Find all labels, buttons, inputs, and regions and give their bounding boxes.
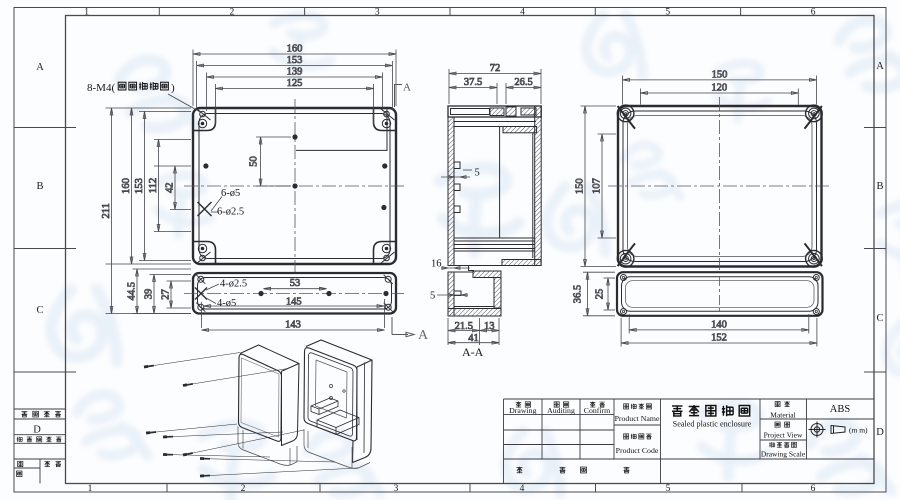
- svg-text:37.5: 37.5: [464, 77, 482, 88]
- svg-text:Confirm: Confirm: [584, 406, 610, 415]
- svg-text:42: 42: [165, 183, 176, 194]
- svg-text:1: 1: [84, 8, 89, 18]
- svg-text:Drawing: Drawing: [509, 406, 536, 415]
- svg-text:): ): [171, 82, 175, 94]
- svg-text:160: 160: [121, 178, 132, 194]
- svg-text:25: 25: [595, 289, 606, 300]
- svg-text:13: 13: [484, 321, 495, 332]
- svg-text:C: C: [876, 313, 883, 324]
- svg-text:4: 4: [520, 8, 525, 18]
- svg-text:2: 2: [241, 484, 246, 494]
- svg-text:72: 72: [490, 63, 501, 74]
- svg-text:153: 153: [287, 55, 303, 66]
- svg-text:5: 5: [430, 291, 435, 302]
- svg-text:150: 150: [575, 178, 586, 194]
- svg-text:B: B: [36, 181, 43, 192]
- svg-text:D: D: [33, 425, 41, 436]
- svg-text:(m m): (m m): [849, 426, 868, 435]
- svg-text:6: 6: [811, 8, 816, 18]
- svg-text:26.5: 26.5: [514, 77, 532, 88]
- svg-text:143: 143: [285, 320, 301, 331]
- svg-text:Project View: Project View: [764, 431, 803, 440]
- svg-text:44.5: 44.5: [127, 282, 138, 300]
- svg-text:Product Name: Product Name: [615, 414, 660, 423]
- svg-text:50: 50: [249, 156, 260, 167]
- svg-text:41: 41: [468, 333, 479, 344]
- svg-text:8-M4(: 8-M4(: [87, 82, 115, 94]
- svg-text:Drawing Scale: Drawing Scale: [761, 450, 806, 459]
- svg-text:2: 2: [230, 8, 235, 18]
- svg-text:21.5: 21.5: [455, 321, 473, 332]
- svg-text:C: C: [36, 305, 43, 316]
- svg-text:152: 152: [711, 333, 727, 344]
- svg-text:3: 3: [394, 484, 399, 494]
- svg-text:4-ø5: 4-ø5: [217, 298, 236, 309]
- svg-text:36.5: 36.5: [573, 285, 584, 303]
- svg-text:107: 107: [592, 178, 603, 194]
- svg-text:153: 153: [134, 178, 145, 194]
- svg-text:160: 160: [287, 44, 303, 55]
- svg-text:Product Code: Product Code: [616, 446, 659, 455]
- svg-text:6-ø5: 6-ø5: [221, 188, 240, 199]
- svg-text:140: 140: [711, 319, 727, 330]
- svg-text:A: A: [36, 62, 44, 73]
- svg-text:6: 6: [811, 484, 816, 494]
- svg-text:139: 139: [287, 67, 303, 78]
- svg-text:A: A: [876, 61, 884, 72]
- svg-text:3: 3: [375, 8, 380, 18]
- svg-text:211: 211: [101, 203, 112, 218]
- svg-text:1: 1: [88, 484, 93, 494]
- svg-text:B: B: [876, 181, 883, 192]
- svg-text:ABS: ABS: [830, 404, 851, 415]
- svg-text:6-ø2.5: 6-ø2.5: [217, 207, 244, 218]
- svg-text:5: 5: [475, 168, 480, 179]
- svg-text:53: 53: [290, 278, 301, 289]
- svg-text:125: 125: [287, 78, 303, 89]
- svg-text:4: 4: [520, 484, 525, 494]
- svg-text:D: D: [876, 427, 884, 438]
- svg-text:145: 145: [286, 297, 302, 308]
- svg-text:16: 16: [431, 259, 442, 270]
- svg-text:4-ø2.5: 4-ø2.5: [220, 279, 247, 290]
- svg-text:A-A: A-A: [462, 345, 484, 359]
- svg-text:Material: Material: [770, 411, 795, 420]
- svg-text:Auditing: Auditing: [547, 406, 575, 415]
- svg-text:5: 5: [665, 8, 670, 18]
- svg-text:A: A: [418, 328, 429, 343]
- svg-text:27: 27: [161, 289, 172, 300]
- svg-text:Sealed plastic enclosure: Sealed plastic enclosure: [673, 420, 752, 429]
- svg-text:39: 39: [144, 289, 155, 300]
- svg-text:112: 112: [148, 178, 159, 193]
- svg-text:A: A: [403, 82, 411, 94]
- svg-text:120: 120: [711, 83, 727, 94]
- svg-text:150: 150: [712, 69, 728, 80]
- svg-text:5: 5: [666, 484, 671, 494]
